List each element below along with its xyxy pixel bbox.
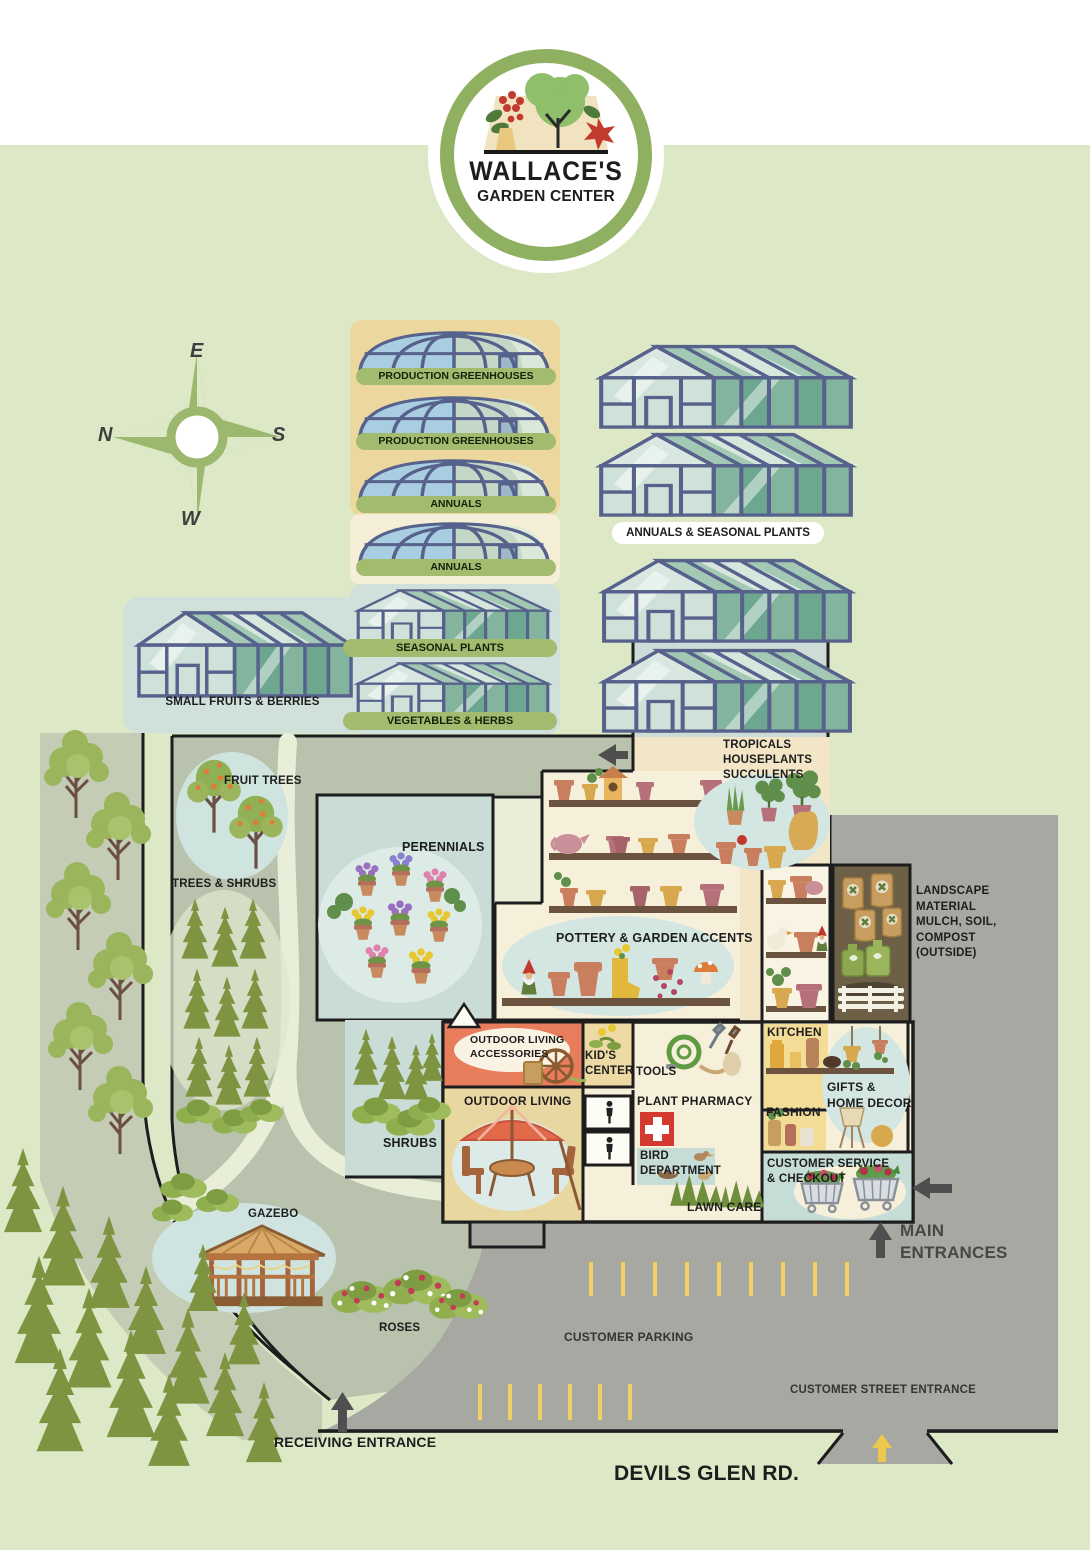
fence-icon — [838, 986, 904, 1012]
label-seasonal-plants: SEASONAL PLANTS — [343, 639, 557, 657]
small-fruits-greenhouse — [139, 613, 351, 696]
label-outdoor-living-accessories: OUTDOOR LIVING ACCESSORIES — [470, 1033, 564, 1061]
perennials-display — [318, 847, 482, 1003]
logo-title: WALLACE'S — [454, 156, 638, 187]
label-road-name: DEVILS GLEN RD. — [614, 1462, 799, 1486]
label-lawn-care: LAWN CARE — [687, 1200, 761, 1214]
logo-badge — [428, 37, 664, 273]
label-customer-street-entrance: CUSTOMER STREET ENTRANCE — [790, 1384, 976, 1396]
entry-vestibule — [470, 1222, 544, 1247]
label-tools: TOOLS — [636, 1066, 676, 1078]
label-annuals-1: ANNUALS — [356, 496, 556, 513]
label-gifts-home-decor: GIFTS & HOME DECOR — [827, 1079, 912, 1111]
label-bird-department: BIRD DEPARTMENT — [640, 1149, 721, 1179]
label-landscape-line4: COMPOST — [916, 931, 996, 947]
label-main-line1: MAIN — [900, 1220, 1008, 1242]
label-gifts-line2: HOME DECOR — [827, 1095, 912, 1111]
label-small-fruits-berries: SMALL FRUITS & BERRIES — [140, 696, 345, 708]
label-bird-line1: BIRD — [640, 1149, 721, 1164]
label-vegetables-herbs: VEGETABLES & HERBS — [343, 712, 557, 730]
label-perennials: PERENNIALS — [402, 840, 485, 854]
label-customer-service-line1: CUSTOMER SERVICE — [767, 1157, 889, 1172]
label-kids-line1: KID'S — [585, 1049, 633, 1064]
label-plant-pharmacy: PLANT PHARMACY — [637, 1094, 752, 1108]
compass-west: W — [181, 508, 200, 531]
label-main-line2: ENTRANCES — [900, 1242, 1008, 1264]
label-landscape-line3: MULCH, SOIL, — [916, 915, 996, 931]
label-production-greenhouse-2: PRODUCTION GREENHOUSES — [356, 433, 556, 450]
label-landscape-line2: MATERIAL — [916, 900, 996, 916]
label-gazebo: GAZEBO — [248, 1208, 298, 1220]
map-artwork — [0, 0, 1090, 1550]
label-landscape-material: LANDSCAPE MATERIAL MULCH, SOIL, COMPOST … — [916, 884, 996, 962]
label-ola-line2: ACCESSORIES — [470, 1047, 564, 1061]
restrooms — [585, 1096, 631, 1165]
label-main-entrances: MAIN ENTRANCES — [900, 1220, 1008, 1264]
label-bird-line2: DEPARTMENT — [640, 1164, 721, 1179]
fruit-trees-area — [176, 752, 288, 880]
label-fruit-trees: FRUIT TREES — [224, 775, 302, 787]
label-tropicals-line2: HOUSEPLANTS — [723, 753, 812, 768]
garden-center-map: WALLACE'S GARDEN CENTER E N S W PRODUCTI… — [0, 0, 1090, 1550]
label-customer-parking: CUSTOMER PARKING — [564, 1330, 693, 1344]
label-kids-center: KID'S CENTER — [585, 1049, 633, 1079]
label-gifts-line1: GIFTS & — [827, 1079, 912, 1095]
label-tropicals: TROPICALS HOUSEPLANTS SUCCULENTS — [723, 738, 812, 783]
label-receiving-entrance: RECEIVING ENTRANCE — [274, 1434, 436, 1450]
label-production-greenhouse-1: PRODUCTION GREENHOUSES — [356, 368, 556, 385]
compass-rose-icon — [113, 352, 281, 522]
label-customer-service-line2: & CHECKOUT — [767, 1172, 889, 1187]
label-tropicals-line1: TROPICALS — [723, 738, 812, 753]
label-tropicals-line3: SUCCULENTS — [723, 768, 812, 783]
label-trees-shrubs: TREES & SHRUBS — [172, 878, 276, 890]
label-ola-line1: OUTDOOR LIVING — [470, 1033, 564, 1047]
label-fashion: FASHION — [766, 1105, 821, 1119]
label-kitchen: KITCHEN — [767, 1025, 822, 1039]
label-customer-service: CUSTOMER SERVICE & CHECKOUT — [767, 1157, 889, 1187]
label-landscape-line1: LANDSCAPE — [916, 884, 996, 900]
label-annuals-seasonal-plants: ANNUALS & SEASONAL PLANTS — [612, 522, 824, 544]
label-roses: ROSES — [379, 1322, 420, 1334]
label-kids-line2: CENTER — [585, 1064, 633, 1079]
compass-north: N — [98, 424, 112, 447]
label-annuals-2: ANNUALS — [356, 559, 556, 576]
label-landscape-line5: (OUTSIDE) — [916, 946, 996, 962]
plant-pharmacy-cross-icon — [640, 1112, 674, 1146]
compass-east: E — [190, 340, 203, 363]
label-pottery: POTTERY & GARDEN ACCENTS — [556, 931, 726, 945]
label-shrubs: SHRUBS — [383, 1136, 437, 1150]
label-outdoor-living: OUTDOOR LIVING — [464, 1094, 571, 1108]
logo-subtitle: GARDEN CENTER — [446, 188, 646, 206]
compass-south: S — [272, 424, 285, 447]
